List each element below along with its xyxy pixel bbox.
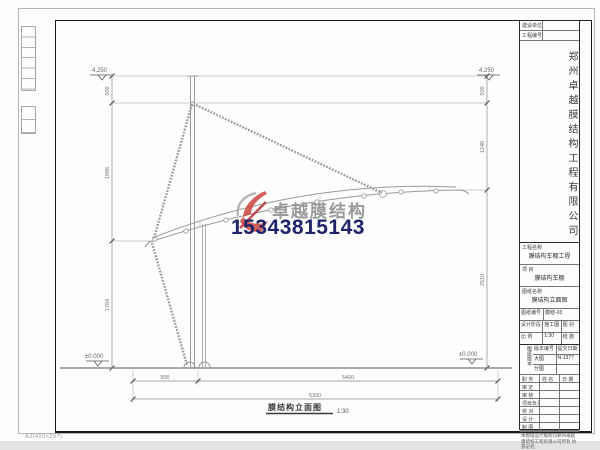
project-no-label: 工程编号 (520, 31, 542, 40)
project-no-value (542, 31, 579, 40)
rear-post (203, 224, 206, 368)
drawing-caption: 膜结构立面图 (268, 402, 322, 412)
owner-label: 建设单位 (520, 21, 542, 30)
dim-bottom-1: 900 (160, 375, 169, 381)
sign-cell (559, 415, 579, 422)
dim-left-2: 1986 (105, 167, 111, 179)
sign-row-label: 校 对 (520, 407, 539, 414)
item-label: 项 目 (520, 265, 579, 273)
cad-sheet: A3(420×297) (0, 0, 600, 450)
sign-cell (539, 399, 559, 406)
sign-header-row: 职 务 姓 名 日 期 (520, 375, 579, 383)
sign-row-label: 审 定 (520, 383, 539, 390)
sign-header-name: 姓 名 (539, 375, 559, 382)
sign-row: 制 图 (520, 423, 579, 431)
dim-right-3: 2510 (480, 274, 486, 286)
sign-row-label: 审 核 (520, 391, 539, 398)
type-value: 结 施 (561, 333, 579, 344)
sign-cell (559, 383, 579, 390)
project-name-label: 工程名称 (520, 243, 579, 251)
elev-ground-right-label: ±0.000 (459, 352, 478, 358)
sign-cell (539, 407, 559, 414)
dim-right-2: 1240 (480, 141, 486, 153)
sheet-no-label: 图纸编号 (520, 309, 543, 320)
sign-row: 设 计 (520, 415, 579, 423)
meta-grid: 图纸编号 膜结-03 设计阶段 施工图 图 别 比 例 1:30 结 施 (520, 309, 579, 345)
version-r3c1: 分图 (533, 365, 556, 374)
title-block: 建设单位 工程编号 郑州卓越膜结构工程有限公司 工程名称 膜结构车棚工程 项 目… (519, 20, 580, 430)
phone-watermark: 15343815143 (231, 216, 365, 240)
dim-left-3: 1764 (105, 299, 111, 311)
sign-row: 审 定 (520, 383, 579, 391)
sign-header-role: 职 务 (520, 375, 539, 382)
stage-value: 施工图 (542, 321, 560, 332)
elev-top-left-label: 4.250 (92, 68, 108, 74)
version-block-label: 图纸版本 (520, 345, 533, 374)
dim-bottom-total: 6300 (309, 393, 321, 399)
copyright-note: 本图纸设计版权归郑州卓越膜结构工程有限公司所有 仿冒必究 (520, 431, 579, 449)
dimension-labels: 500 1986 1764 500 1240 2510 900 5400 630… (105, 86, 486, 399)
base-anchors (184, 362, 210, 368)
stage-label: 设计阶段 (520, 321, 542, 332)
dim-bottom-2: 5400 (342, 375, 354, 381)
elev-ground-left-label: ±0.000 (85, 354, 104, 360)
version-block: 图纸版本 版本编号 提交日期 大图 N-1377 分图 (520, 345, 579, 375)
sign-header-date: 日 期 (559, 375, 579, 382)
scale-value: 1:30 (542, 333, 560, 344)
sign-row: 校 对 (520, 407, 579, 415)
sign-row-label: 项目负责 (520, 399, 539, 406)
sign-row: 项目负责 (520, 399, 579, 407)
version-r2c2: N-1377 (556, 355, 580, 364)
item-value: 膜结构车棚 (520, 273, 579, 287)
sign-cell (559, 423, 579, 430)
sign-cell (559, 391, 579, 398)
sign-cell (559, 399, 579, 406)
dim-right-1: 500 (480, 86, 486, 95)
sign-row-label: 制 图 (520, 423, 539, 430)
sign-row: 审 核 (520, 391, 579, 399)
sign-cell (539, 423, 559, 430)
owner-value (542, 21, 579, 30)
sign-row-label: 设 计 (520, 415, 539, 422)
company-name-vertical: 郑州卓越膜结构工程有限公司 (520, 41, 579, 243)
sign-cell (539, 383, 559, 390)
sheet-name-value: 膜结构立面图 (520, 295, 579, 309)
version-r1c1: 版本编号 (533, 345, 556, 354)
sheet-no-value: 膜结-03 (543, 309, 579, 320)
sign-cell (539, 415, 559, 422)
project-no-row: 工程编号 (520, 31, 579, 41)
sign-cell (539, 391, 559, 398)
version-r1c2: 提交日期 (556, 345, 580, 354)
version-r3c2 (556, 365, 580, 374)
owner-row: 建设单位 (520, 21, 579, 31)
scale-label: 比 例 (520, 333, 542, 344)
sign-cell (559, 407, 579, 414)
elev-top-right-label: 4.250 (479, 68, 495, 74)
version-r2c1: 大图 (533, 355, 556, 364)
type-label: 图 别 (561, 321, 579, 332)
drawing-scale: 1:30 (337, 409, 349, 415)
dim-left-1: 500 (105, 86, 111, 95)
project-name-value: 膜结构车棚工程 (520, 251, 579, 265)
drawing-caption-group: 膜结构立面图 1:30 (266, 402, 349, 415)
sheet-name-label: 图纸名称 (520, 287, 579, 295)
